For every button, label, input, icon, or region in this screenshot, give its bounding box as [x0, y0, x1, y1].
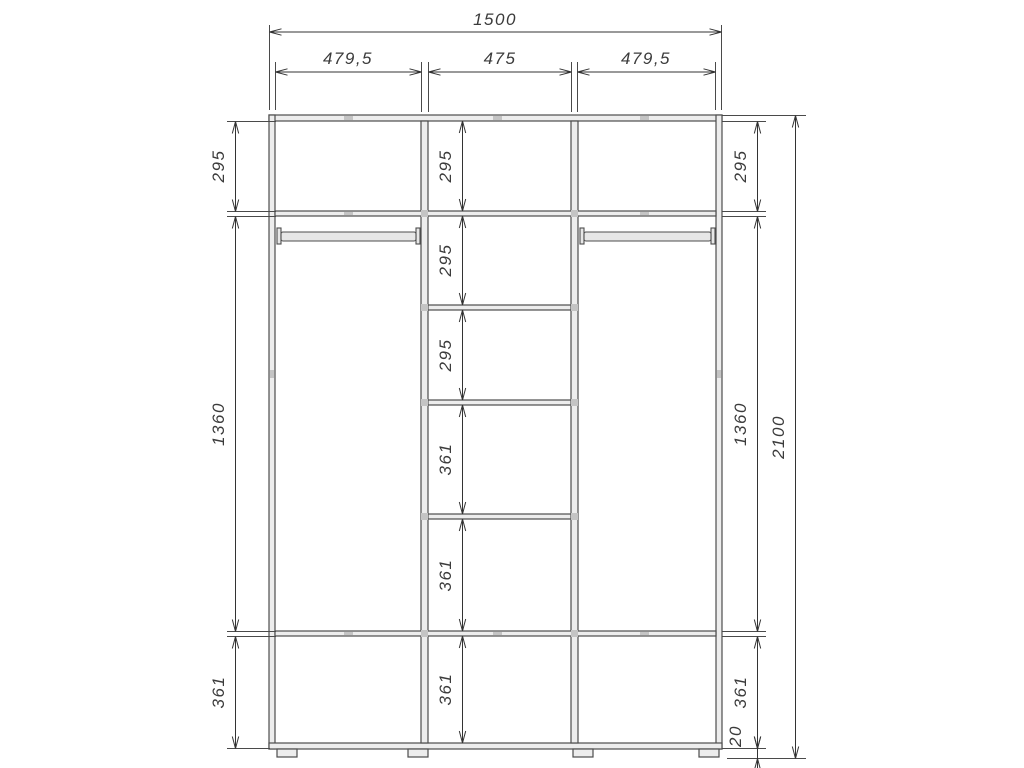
foot-4: [699, 749, 719, 757]
dim-label-total-width: 1500: [473, 10, 517, 29]
dim-label-left-3: 361: [209, 676, 228, 709]
top-shelf: [275, 211, 716, 216]
dim-label-middle-4: 361: [436, 443, 455, 476]
bottom-panel: [269, 743, 722, 749]
middle-shelf-2: [428, 400, 571, 405]
dim-label-middle-6: 361: [436, 673, 455, 706]
dim-label-middle-1: 295: [436, 150, 455, 184]
hanging-rods: [277, 228, 715, 244]
foot-2: [408, 749, 428, 757]
dim-label-middle-5: 361: [436, 559, 455, 592]
rod-bracket-right-b: [711, 228, 715, 244]
dim-label-section-1: 479,5: [323, 49, 373, 68]
dim-label-right-4: 20: [726, 725, 745, 748]
middle-shelf-3: [428, 514, 571, 519]
rod-bracket-left-a: [277, 228, 281, 244]
dim-label-middle-2: 295: [436, 244, 455, 278]
rod-bracket-left-b: [416, 228, 420, 244]
dim-label-left-2: 1360: [209, 402, 228, 446]
dim-label-right-3: 361: [731, 676, 750, 709]
dim-label-right-1: 295: [731, 150, 750, 184]
dim-label-right-2: 1360: [731, 402, 750, 446]
wardrobe-dimension-drawing: 1500 479,5 475 479,5 295 1360 361 295 29…: [0, 0, 1024, 768]
cabinet-structure: [269, 115, 722, 749]
left-side-panel: [269, 115, 275, 749]
foot-3: [573, 749, 593, 757]
middle-shelf-1: [428, 305, 571, 310]
foot-1: [277, 749, 297, 757]
feet: [277, 749, 719, 757]
dim-label-section-3: 479,5: [621, 49, 671, 68]
dim-label-section-2: 475: [484, 49, 517, 68]
right-side-panel: [716, 115, 722, 749]
hanging-rod-left: [281, 232, 416, 241]
dim-label-left-1: 295: [209, 150, 228, 184]
connector-marks: [270, 116, 721, 637]
dim-label-total-height: 2100: [769, 415, 788, 460]
rod-bracket-right-a: [580, 228, 584, 244]
hanging-rod-right: [584, 232, 711, 241]
dim-label-middle-3: 295: [436, 339, 455, 373]
